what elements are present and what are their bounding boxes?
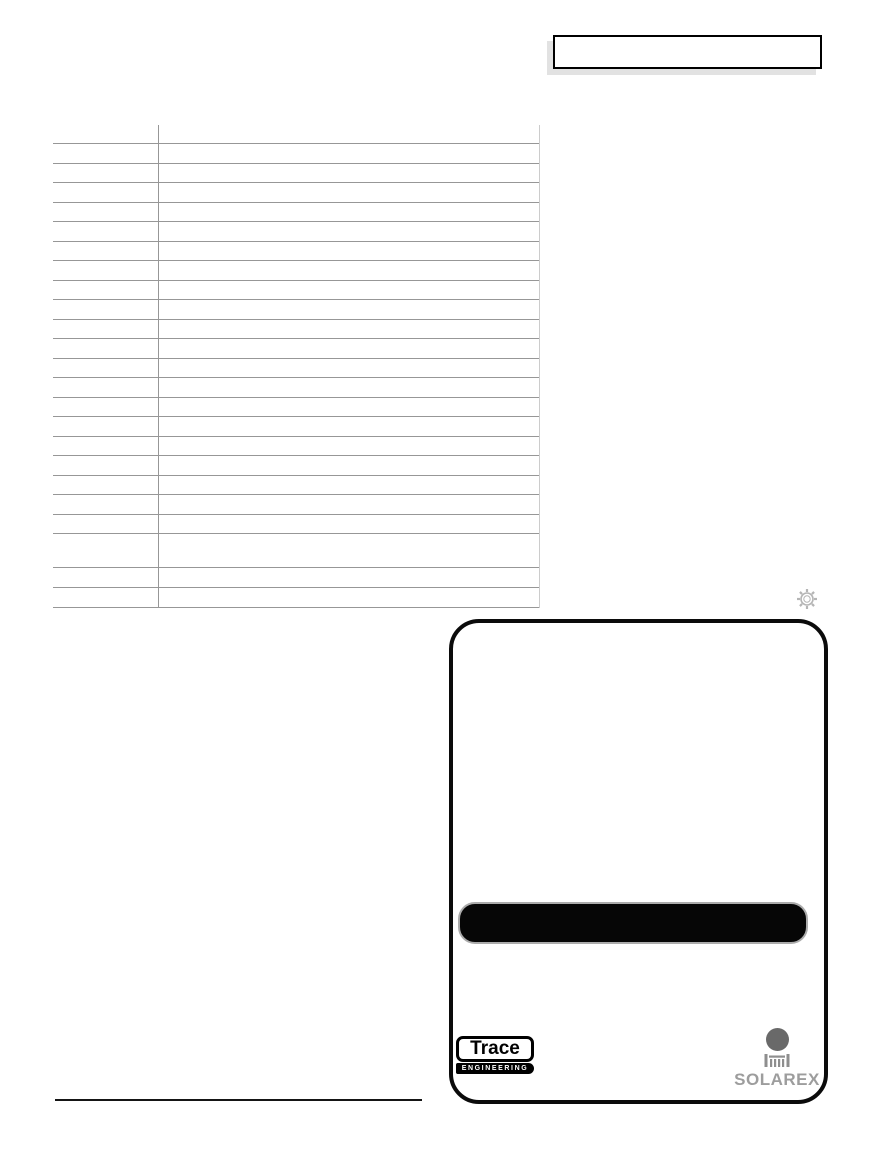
table-cell (159, 456, 539, 475)
table-cell (53, 568, 159, 587)
table-cell (159, 339, 539, 358)
table-row (53, 359, 539, 379)
table-cell (159, 476, 539, 495)
table-cell (159, 495, 539, 514)
table-cell (53, 534, 159, 567)
table-row (53, 281, 539, 301)
table-row (53, 476, 539, 496)
table-cell (159, 300, 539, 319)
table-cell (53, 242, 159, 261)
table-cell (159, 281, 539, 300)
table-cell (53, 398, 159, 417)
table-cell (53, 300, 159, 319)
spec-table (53, 125, 540, 608)
table-cell (159, 164, 539, 183)
table-cell (159, 261, 539, 280)
table-row (53, 183, 539, 203)
table-cell (53, 164, 159, 183)
table-cell (159, 125, 539, 143)
table-cell (159, 222, 539, 241)
table-cell (159, 144, 539, 163)
table-cell (159, 588, 539, 607)
table-cell (53, 476, 159, 495)
table-row (53, 495, 539, 515)
table-row (53, 320, 539, 340)
table-cell (159, 417, 539, 436)
table-cell (53, 437, 159, 456)
table-row (53, 144, 539, 164)
table-cell (53, 222, 159, 241)
table-cell (159, 568, 539, 587)
table-row (53, 515, 539, 535)
table-cell (53, 359, 159, 378)
table-row (53, 568, 539, 588)
table-row (53, 164, 539, 184)
table-cell (53, 515, 159, 534)
table-row (53, 300, 539, 320)
table-cell (53, 320, 159, 339)
table-cell (53, 417, 159, 436)
table-cell (159, 242, 539, 261)
solarex-array-icon (764, 1053, 790, 1068)
table-cell (53, 144, 159, 163)
table-cell (159, 203, 539, 222)
table-row (53, 261, 539, 281)
table-row (53, 417, 539, 437)
table-cell (53, 339, 159, 358)
table-row (53, 242, 539, 262)
solarex-logo: SOLAREX (734, 1028, 820, 1090)
table-cell (53, 456, 159, 475)
table-row (53, 339, 539, 359)
table-cell (53, 261, 159, 280)
product-panel: Trace ENGINEERING SOLAREX (449, 619, 828, 1104)
table-row (53, 456, 539, 476)
table-cell (53, 588, 159, 607)
model-label-bar (458, 902, 808, 944)
table-cell (159, 534, 539, 567)
table-row (53, 534, 539, 568)
solarex-sun-icon (766, 1028, 789, 1051)
trace-logo-word: Trace (456, 1036, 534, 1062)
table-row (53, 588, 539, 608)
table-row (53, 378, 539, 398)
sun-icon (796, 588, 818, 610)
table-cell (159, 398, 539, 417)
table-cell (53, 281, 159, 300)
table-row (53, 222, 539, 242)
solarex-logo-word: SOLAREX (734, 1070, 820, 1090)
table-cell (53, 203, 159, 222)
table-row (53, 125, 539, 144)
table-cell (159, 437, 539, 456)
table-row (53, 437, 539, 457)
table-row (53, 203, 539, 223)
table-cell (53, 125, 159, 143)
table-row (53, 398, 539, 418)
table-cell (53, 378, 159, 397)
table-cell (159, 515, 539, 534)
footer-rule (55, 1099, 422, 1101)
table-cell (159, 320, 539, 339)
table-cell (53, 495, 159, 514)
table-cell (53, 183, 159, 202)
trace-logo: Trace ENGINEERING (456, 1036, 534, 1074)
table-cell (159, 378, 539, 397)
table-cell (159, 359, 539, 378)
table-cell (159, 183, 539, 202)
title-box (553, 35, 822, 69)
trace-logo-tagline: ENGINEERING (456, 1063, 534, 1074)
